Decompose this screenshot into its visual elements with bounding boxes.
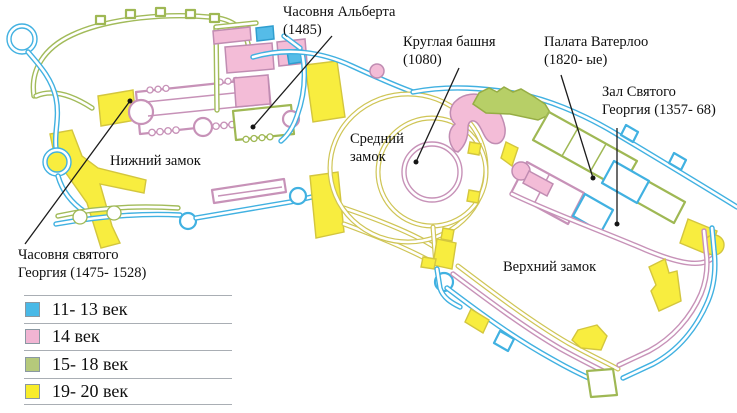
label-st-george-chapel: Часовня святогоГеоргия (1475- 1528) xyxy=(18,246,146,282)
label-upper-ward: Верхний замок xyxy=(503,258,596,276)
south-corner-tower xyxy=(587,369,617,397)
legend-label-19-20: 19- 20 век xyxy=(52,381,128,402)
legend-swatch-14 xyxy=(25,329,40,344)
label-albert-chapel: Часовня Альберта(1485) xyxy=(283,3,395,39)
windsor-castle-plan: Часовня Альберта(1485) Круглая башня(108… xyxy=(0,0,737,413)
label-round-tower: Круглая башня(1080) xyxy=(403,33,496,69)
legend-row-14: 14 век xyxy=(24,323,232,351)
legend-label-14: 14 век xyxy=(52,326,100,347)
legend-row-11-13: 11- 13 век xyxy=(24,295,232,323)
legend-label-11-13: 11- 13 век xyxy=(52,299,127,320)
label-st-george-hall: Зал СвятогоГеоргия (1357- 68) xyxy=(602,83,716,119)
legend-swatch-11-13 xyxy=(25,302,40,317)
legend-label-15-18: 15- 18 век xyxy=(52,354,128,375)
legend-row-19-20: 19- 20 век xyxy=(24,378,232,406)
legend-row-15-18: 15- 18 век xyxy=(24,350,232,378)
legend-swatch-15-18 xyxy=(25,357,40,372)
label-waterloo-chamber: Палата Ватерлоо(1820- ые) xyxy=(544,33,648,69)
label-lower-ward: Нижний замок xyxy=(110,152,201,170)
legend: 11- 13 век 14 век 15- 18 век 19- 20 век xyxy=(24,295,232,405)
label-middle-ward: Среднийзамок xyxy=(350,130,404,166)
legend-swatch-19-20 xyxy=(25,384,40,399)
